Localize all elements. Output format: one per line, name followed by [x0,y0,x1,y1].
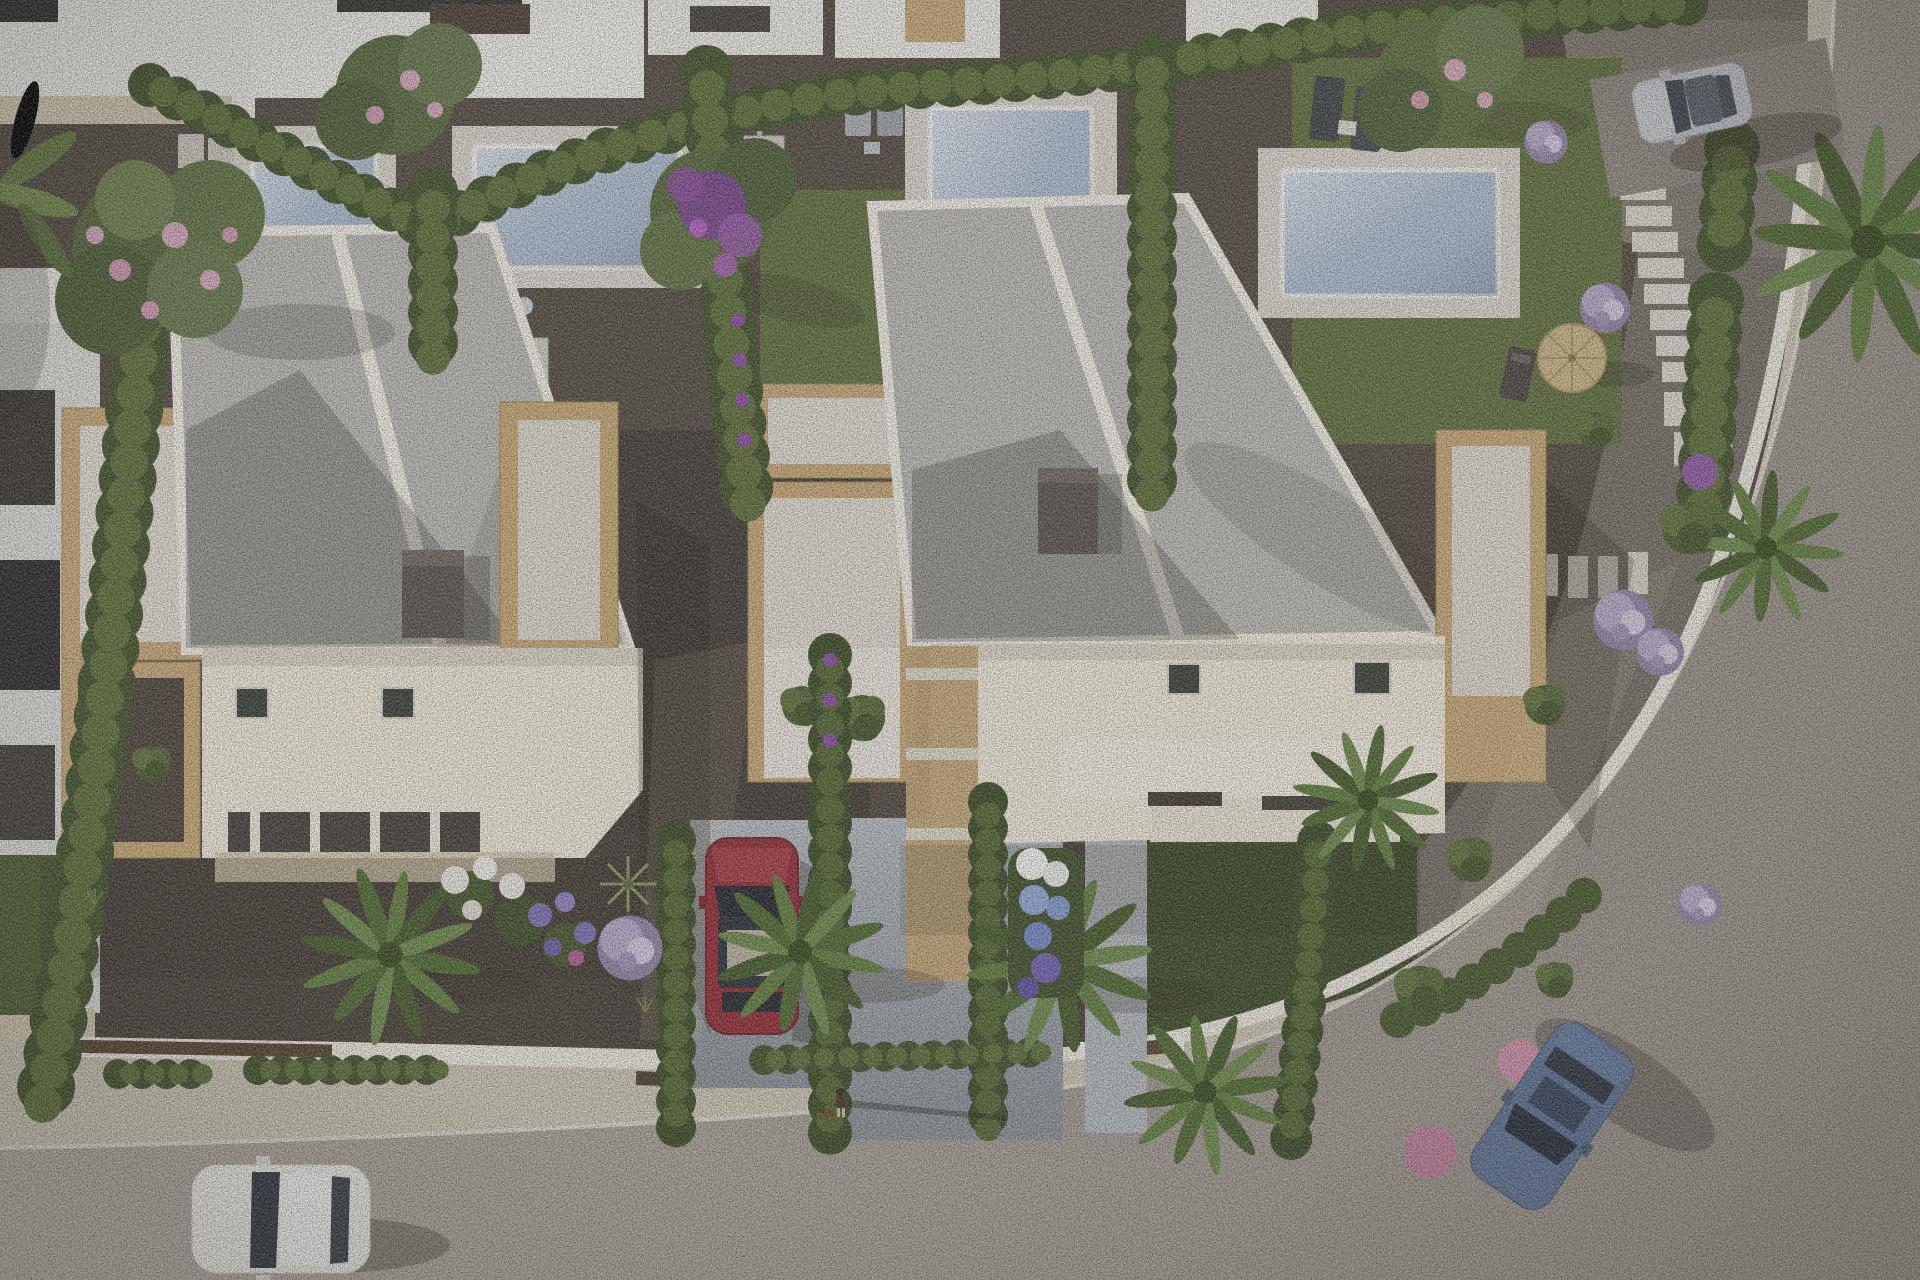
grain-overlay [0,0,1920,1280]
aerial-scene [0,0,1920,1280]
aerial-render-stage [0,0,1920,1280]
vignette [0,0,1920,1280]
